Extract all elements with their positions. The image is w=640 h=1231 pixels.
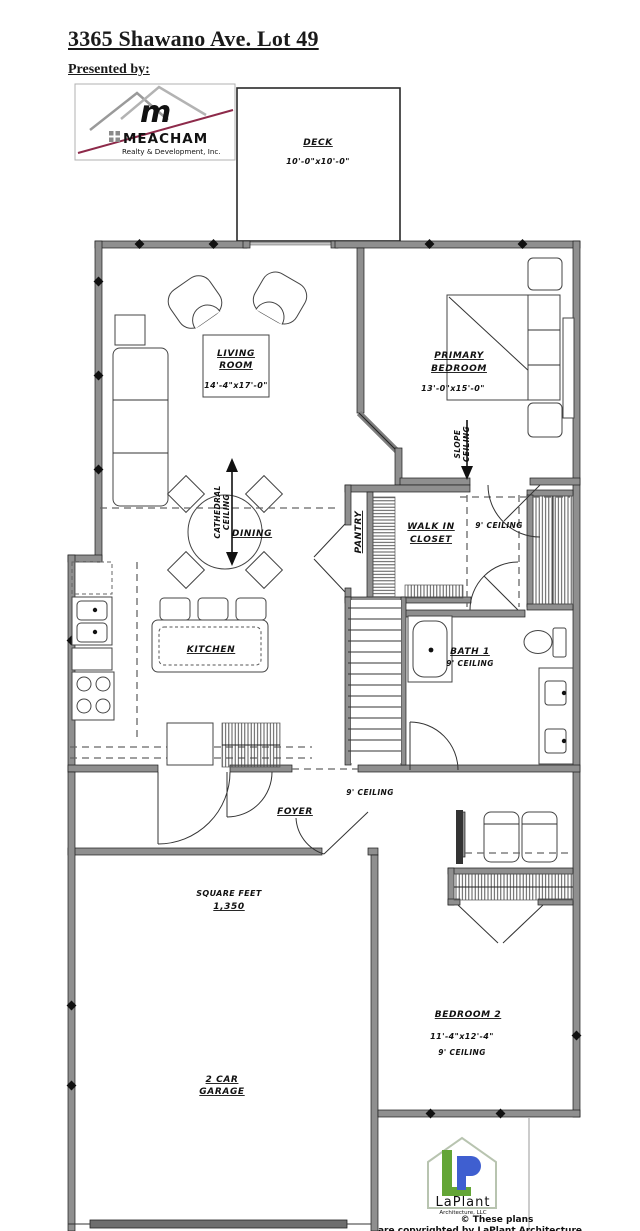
walk-in-closet-shelf xyxy=(405,585,463,598)
walk-in-closet-label: WALK IN xyxy=(407,522,455,532)
floor-plan-page: 3365 Shawano Ave. Lot 49 Presented by: m… xyxy=(0,0,640,1231)
stool xyxy=(236,598,266,620)
primary-bedroom-furniture xyxy=(447,258,574,437)
deck: DECK 10'-0"x10'-0" xyxy=(237,88,400,241)
slope-ceiling-arrow: SLOPE CEILING xyxy=(453,420,473,480)
square-feet-value: 1,350 xyxy=(213,902,244,912)
end-table xyxy=(115,315,145,345)
foyer-label: FOYER xyxy=(277,807,313,817)
kitchen-label: KITCHEN xyxy=(187,645,235,655)
pantry-label: PANTRY xyxy=(354,510,364,554)
nightstand xyxy=(528,258,562,290)
svg-text:BEDROOM: BEDROOM xyxy=(431,364,487,374)
foyer-ceiling-note: 9' CEILING xyxy=(346,788,394,797)
bath1-label: BATH 1 xyxy=(450,647,490,657)
dining-label: DINING xyxy=(232,529,272,539)
primary-bedroom-dims: 13'-0"x15'-0" xyxy=(421,384,485,393)
armchair xyxy=(163,270,228,334)
stairs xyxy=(348,600,401,763)
hall-ceiling-note: 9' CEILING xyxy=(475,521,523,530)
living-room-dims: 14'-4"x17'-0" xyxy=(204,381,268,390)
slope-ceiling-label: SLOPE xyxy=(453,429,462,458)
copyright-line1: © These plans xyxy=(461,1215,534,1225)
square-feet-label: SQUARE FEET xyxy=(196,889,262,898)
svg-text:CEILING: CEILING xyxy=(462,426,471,462)
front-door xyxy=(158,772,230,844)
counter xyxy=(72,562,112,594)
svg-text:GARAGE: GARAGE xyxy=(199,1087,245,1097)
dashed-lines xyxy=(100,495,571,853)
laundry xyxy=(456,810,557,864)
closet-bifold-door xyxy=(458,905,498,943)
garage-door xyxy=(90,1220,347,1228)
toilet xyxy=(524,631,552,654)
floor-plan-drawing: m MEACHAM Realty & Development, Inc. DEC… xyxy=(0,0,640,1231)
copyright-line2: are copyrighted by LaPlant Architecture xyxy=(378,1226,582,1231)
meacham-tagline: Realty & Development, Inc. xyxy=(122,147,221,156)
garage-label: 2 CAR xyxy=(206,1075,239,1085)
svg-text:ROOM: ROOM xyxy=(219,361,253,371)
wall-stub xyxy=(456,810,463,864)
primary-bedroom-label: PRIMARY xyxy=(434,351,485,361)
nightstand xyxy=(528,403,562,437)
deck-dims: 10'-0"x10'-0" xyxy=(286,157,350,166)
meacham-logo: m MEACHAM Realty & Development, Inc. xyxy=(75,84,235,160)
bedroom2-ceiling-note: 9' CEILING xyxy=(438,1048,486,1057)
bath1-ceiling-note: 9' CEILING xyxy=(446,659,494,668)
laplant-P-icon xyxy=(457,1156,466,1190)
bedroom2-dims: 11'-4"x12'-4" xyxy=(430,1032,494,1041)
meacham-name: MEACHAM xyxy=(123,131,208,147)
laplant-logo: LaPlant Architecture, LLC © These plans … xyxy=(378,1118,582,1231)
meacham-monogram: m xyxy=(140,95,171,130)
foyer-door xyxy=(227,772,272,817)
walk-in-closet-shelf xyxy=(373,497,395,597)
armchair xyxy=(248,267,312,329)
bath1-fixtures xyxy=(408,616,573,764)
bath-door xyxy=(410,722,458,770)
sofa xyxy=(113,348,168,506)
angled-door xyxy=(324,812,368,854)
stool xyxy=(160,598,190,620)
cathedral-ceiling-label: CATHEDRAL xyxy=(213,485,222,538)
living-room-label: LIVING xyxy=(217,349,255,359)
laplant-name: LaPlant xyxy=(436,1195,491,1210)
foyer-cabinet xyxy=(167,723,213,765)
deck-label: DECK xyxy=(303,138,333,148)
window-sill xyxy=(563,318,574,418)
dryer xyxy=(522,812,557,862)
presented-by-label: Presented by: xyxy=(68,62,150,78)
stool xyxy=(198,598,228,620)
svg-text:CLOSET: CLOSET xyxy=(410,535,452,545)
bedroom2-label: BEDROOM 2 xyxy=(435,1010,501,1020)
pantry-door xyxy=(314,524,345,557)
washer xyxy=(484,812,519,862)
page-title: 3365 Shawano Ave. Lot 49 xyxy=(68,26,319,52)
svg-text:CEILING: CEILING xyxy=(222,494,231,530)
